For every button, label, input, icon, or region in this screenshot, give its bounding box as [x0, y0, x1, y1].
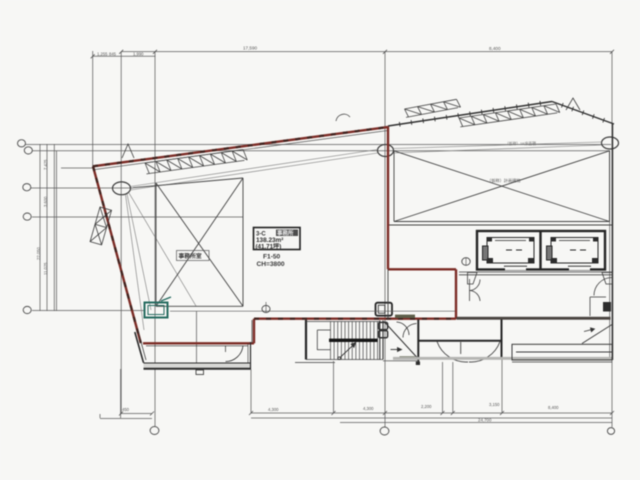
svg-text:4,300: 4,300	[363, 406, 374, 411]
svg-text:17,590: 17,590	[243, 46, 257, 51]
svg-text:7,425: 7,425	[43, 159, 48, 170]
svg-text:3,600: 3,600	[43, 196, 48, 207]
svg-text:（仮称）計画建物: （仮称）計画建物	[487, 177, 521, 184]
svg-text:11,025: 11,025	[43, 262, 48, 275]
svg-text:2,200: 2,200	[421, 404, 432, 409]
svg-text:3,150: 3,150	[489, 402, 500, 407]
svg-text:845: 845	[109, 51, 117, 56]
svg-text:24,700: 24,700	[478, 418, 492, 423]
svg-text:8,400: 8,400	[489, 46, 501, 51]
svg-text:4,300: 4,300	[268, 407, 279, 412]
svg-text:22,050: 22,050	[36, 247, 41, 260]
svg-text:（仮称）1F床面積: （仮称）1F床面積	[505, 141, 536, 146]
svg-text:事務所: 事務所	[277, 229, 294, 237]
svg-text:1,990: 1,990	[133, 52, 144, 57]
svg-text:8,400: 8,400	[548, 405, 559, 410]
svg-text:CH=3800: CH=3800	[257, 261, 285, 268]
svg-text:450: 450	[122, 407, 130, 412]
svg-text:事務所室: 事務所室	[179, 252, 202, 260]
svg-text:1,255: 1,255	[97, 51, 108, 56]
svg-text:F1-50: F1-50	[263, 254, 281, 261]
svg-text:(41.71坪): (41.71坪)	[256, 242, 282, 250]
